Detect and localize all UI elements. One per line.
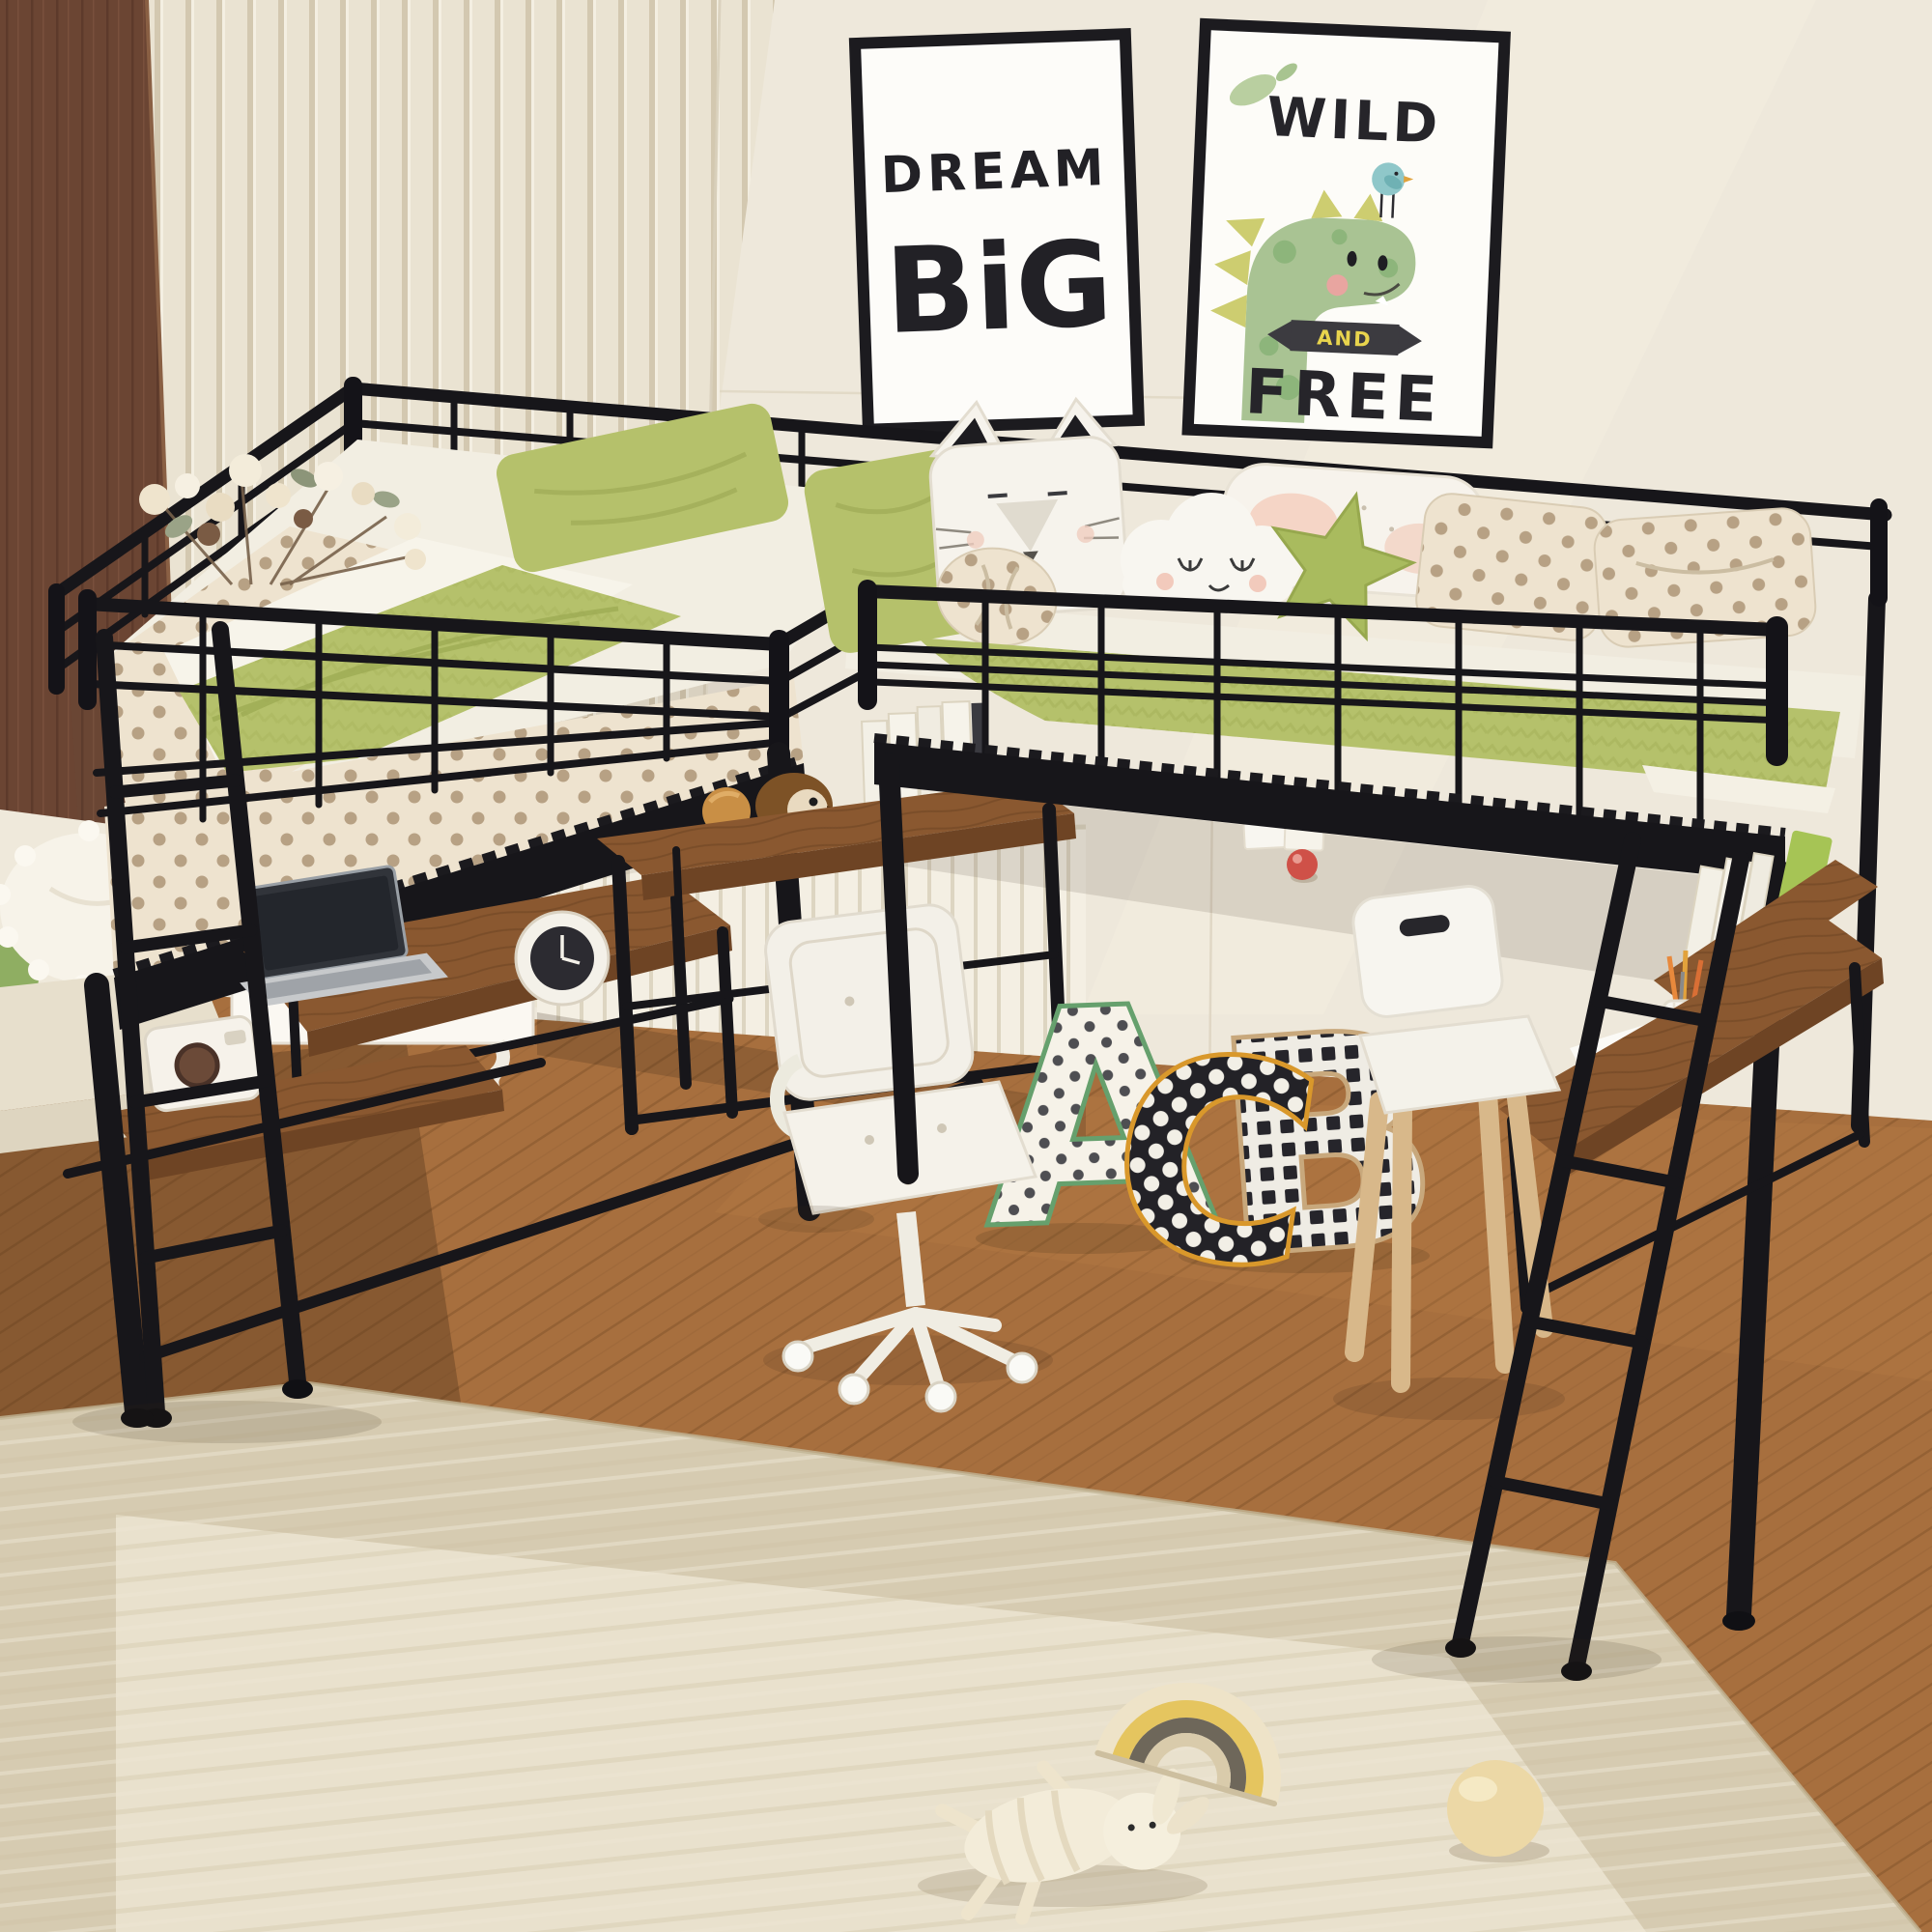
alarm-clock	[516, 912, 609, 1005]
left-bed-post-front	[78, 589, 97, 710]
right-bed-post-left	[858, 580, 877, 710]
leg-foot	[1722, 1611, 1755, 1631]
ladder-foot	[282, 1379, 313, 1399]
left-bed-post-south	[769, 630, 789, 760]
poster-free-text: FREE	[1244, 356, 1444, 437]
banner-and-text: AND	[1317, 326, 1373, 351]
poster-wild-free: WILD	[1188, 24, 1505, 442]
poster-dream-text: DREAM	[880, 139, 1110, 205]
poster-big-text: BiG	[883, 215, 1115, 360]
right-bed-post-right	[1766, 616, 1788, 766]
poster-dream-big: DREAM BiG	[855, 34, 1139, 430]
right-bed-post-back	[1870, 498, 1888, 607]
room-photo: DREAM BiG WILD	[0, 0, 1932, 1932]
red-knob	[1287, 849, 1318, 883]
poster-wild-text: WILD	[1265, 86, 1442, 156]
left-bed-post-west	[48, 583, 65, 695]
